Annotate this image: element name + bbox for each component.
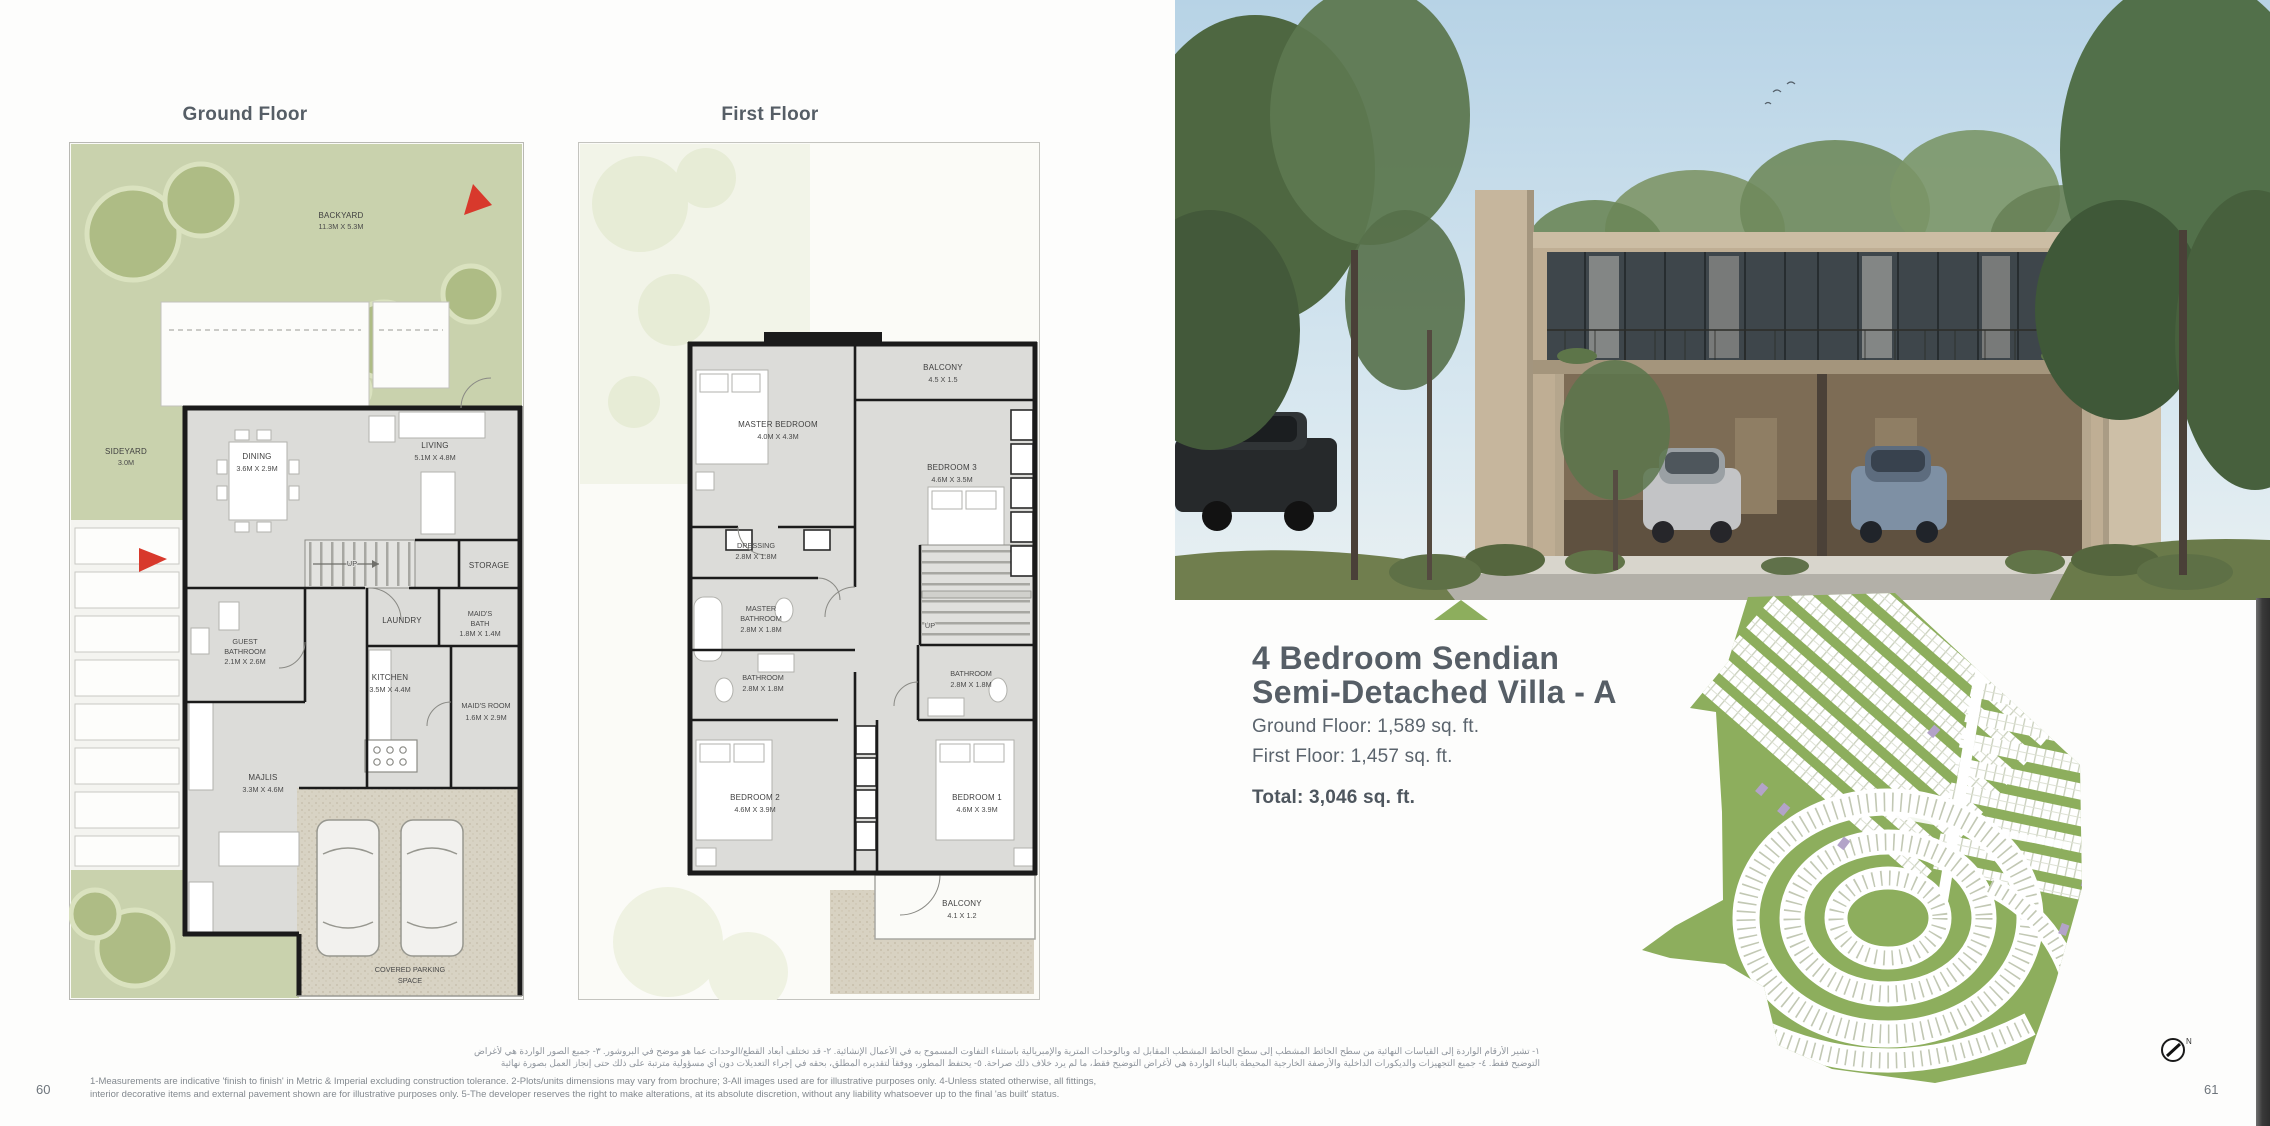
svg-text:MAID'S ROOM: MAID'S ROOM: [461, 701, 510, 710]
svg-text:MASTER: MASTER: [746, 604, 776, 613]
svg-text:KITCHEN: KITCHEN: [372, 673, 409, 682]
svg-text:1.6M X 2.9M: 1.6M X 2.9M: [465, 713, 506, 722]
ground-floor-area: Ground Floor: 1,589 sq. ft.: [1252, 716, 1479, 738]
site-map: N: [1630, 556, 2270, 1106]
svg-text:3.6M X 2.9M: 3.6M X 2.9M: [236, 464, 277, 473]
first-floor-plan: BALCONY 4.5 X 1.5 MASTER BEDROOM 4.0M X …: [578, 142, 1040, 1000]
first-floor-area: First Floor: 1,457 sq. ft.: [1252, 746, 1453, 768]
svg-text:4.6M X 3.9M: 4.6M X 3.9M: [734, 805, 775, 814]
compass-icon: N: [2162, 1037, 2192, 1061]
svg-text:N: N: [2186, 1037, 2192, 1046]
svg-text:2.8M X 1.8M: 2.8M X 1.8M: [735, 552, 776, 561]
svg-text:BATHROOM: BATHROOM: [950, 669, 992, 678]
svg-text:BEDROOM 1: BEDROOM 1: [952, 793, 1002, 802]
stove-icon: [365, 740, 417, 772]
svg-text:DRESSING: DRESSING: [737, 541, 775, 550]
svg-text:11.3M X 5.3M: 11.3M X 5.3M: [319, 222, 364, 231]
svg-text:UP: UP: [347, 559, 357, 568]
villa-title-line1: 4 Bedroom Sendian: [1252, 641, 1617, 675]
svg-text:MASTER BEDROOM: MASTER BEDROOM: [738, 420, 818, 429]
svg-text:BALCONY: BALCONY: [923, 363, 963, 372]
svg-text:4.5 X 1.5: 4.5 X 1.5: [928, 375, 957, 384]
svg-text:3.3M X 4.6M: 3.3M X 4.6M: [242, 785, 283, 794]
brochure-page: Ground Floor First Floor: [0, 0, 2270, 1126]
ground-floor-title: Ground Floor: [183, 104, 308, 126]
svg-text:3.5M X 4.4M: 3.5M X 4.4M: [369, 685, 410, 694]
svg-text:BATHROOM: BATHROOM: [740, 614, 782, 623]
svg-text:3.0M: 3.0M: [118, 458, 134, 467]
svg-text:1.8M X 1.4M: 1.8M X 1.4M: [459, 629, 500, 638]
svg-text:UP: UP: [925, 621, 935, 630]
svg-text:LAUNDRY: LAUNDRY: [382, 616, 422, 625]
svg-text:2.8M X 1.8M: 2.8M X 1.8M: [950, 680, 991, 689]
svg-text:2.8M X 1.8M: 2.8M X 1.8M: [740, 625, 781, 634]
svg-text:BATHROOM: BATHROOM: [742, 673, 784, 682]
leaf-decoration: [1434, 600, 1488, 620]
svg-text:BATHROOM: BATHROOM: [224, 647, 266, 656]
svg-text:STORAGE: STORAGE: [469, 561, 509, 570]
svg-text:4.6M X 3.5M: 4.6M X 3.5M: [931, 475, 972, 484]
svg-text:2.8M X 1.8M: 2.8M X 1.8M: [742, 684, 783, 693]
svg-text:4.0M X 4.3M: 4.0M X 4.3M: [757, 432, 798, 441]
stairs: [305, 540, 415, 588]
villa-photo: [1175, 0, 2270, 600]
disclaimer-arabic-line2: التوضيح فقط. ٤- جميع التجهيزات والديكورا…: [40, 1058, 1540, 1069]
villa-title-line2: Semi-Detached Villa - A: [1252, 675, 1617, 709]
total-area: Total: 3,046 sq. ft.: [1252, 787, 1415, 809]
page-number-left: 60: [36, 1082, 50, 1097]
entry-steps: [71, 520, 183, 870]
svg-text:BATH: BATH: [471, 619, 490, 628]
svg-text:MAID'S: MAID'S: [468, 609, 493, 618]
svg-text:BACKYARD: BACKYARD: [318, 211, 363, 220]
disclaimer-english-line1: 1-Measurements are indicative 'finish to…: [90, 1075, 1096, 1088]
svg-text:DINING: DINING: [242, 452, 271, 461]
ground-floor-plan: BACKYARD 11.3M X 5.3M SIDEYARD 3.0M DINI…: [69, 142, 524, 1000]
svg-text:BEDROOM 2: BEDROOM 2: [730, 793, 780, 802]
svg-text:COVERED PARKING: COVERED PARKING: [375, 965, 446, 974]
svg-text:4.6M X 3.9M: 4.6M X 3.9M: [956, 805, 997, 814]
svg-text:MAJLIS: MAJLIS: [248, 773, 277, 782]
svg-text:SPACE: SPACE: [398, 976, 422, 985]
svg-text:GUEST: GUEST: [232, 637, 258, 646]
first-floor-title: First Floor: [721, 104, 818, 126]
svg-text:LIVING: LIVING: [421, 441, 448, 450]
svg-text:BALCONY: BALCONY: [942, 899, 982, 908]
disclaimer-english-line2: interior decorative items and external p…: [90, 1088, 1059, 1101]
svg-text:BEDROOM 3: BEDROOM 3: [927, 463, 977, 472]
svg-text:4.1 X 1.2: 4.1 X 1.2: [947, 911, 976, 920]
page-number-right: 61: [2204, 1082, 2218, 1097]
villa-title: 4 Bedroom Sendian Semi-Detached Villa - …: [1252, 641, 1617, 709]
svg-text:SIDEYARD: SIDEYARD: [105, 447, 147, 456]
svg-text:2.1M X 2.6M: 2.1M X 2.6M: [224, 657, 265, 666]
svg-text:5.1M X 4.8M: 5.1M X 4.8M: [414, 453, 455, 462]
page-edge-shadow: [2256, 598, 2270, 1126]
disclaimer-arabic-line1: ١- تشير الأرقام الواردة إلى القياسات الن…: [40, 1046, 1540, 1057]
